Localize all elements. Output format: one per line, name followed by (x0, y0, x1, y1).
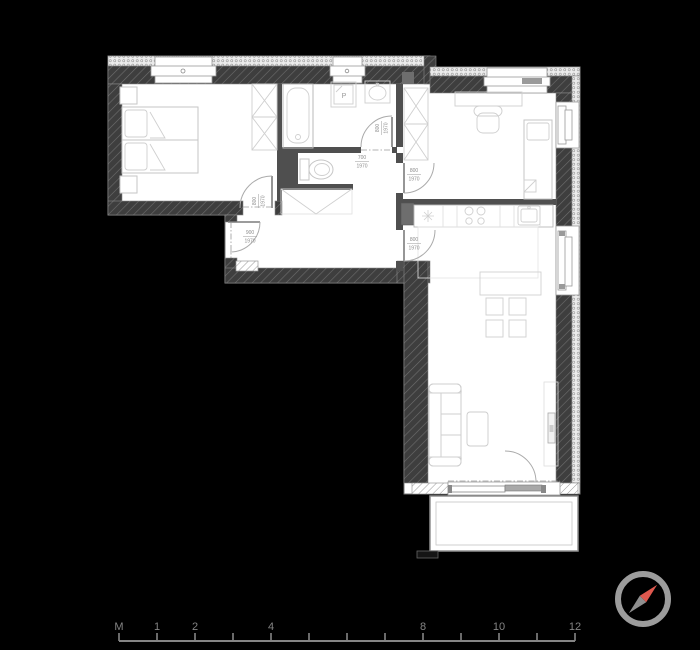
svg-text:1970: 1970 (408, 246, 419, 252)
entrance-doormat (236, 261, 258, 271)
floor-plan-canvas: P (0, 0, 700, 650)
svg-text:800: 800 (375, 124, 381, 133)
svg-text:800: 800 (252, 197, 258, 206)
svg-text:1970: 1970 (384, 122, 390, 133)
svg-text:1970: 1970 (261, 195, 267, 206)
compass-icon (618, 574, 668, 624)
ruler-label-m: M (114, 621, 123, 633)
single-bed (524, 120, 552, 199)
bedroom-1-window (151, 57, 216, 83)
ruler-label-8: 8 (420, 621, 426, 633)
svg-text:700: 700 (358, 155, 367, 161)
ruler-label-2: 2 (192, 621, 198, 633)
ruler-label-4: 4 (268, 621, 274, 633)
svg-text:800: 800 (410, 237, 419, 243)
svg-text:1970: 1970 (408, 177, 419, 183)
nightstand (120, 176, 137, 193)
fridge (401, 203, 414, 225)
svg-text:800: 800 (410, 168, 419, 174)
shaft-column (402, 72, 414, 84)
floor-plan-drawing: P (0, 0, 700, 650)
ruler-label-1: 1 (154, 621, 160, 633)
scale-ruler: M 1 2 4 8 10 12 (114, 621, 581, 641)
ruler-ticks (119, 633, 575, 641)
kitchen-window (556, 226, 579, 295)
double-bed (122, 107, 198, 173)
balcony-step (417, 551, 438, 558)
ruler-label-12: 12 (569, 621, 581, 633)
ruler-label-10: 10 (493, 621, 505, 633)
svg-text:1970: 1970 (244, 239, 255, 245)
sofa (429, 384, 461, 466)
toilet (300, 159, 333, 180)
balcony (417, 496, 578, 558)
nightstand (120, 87, 137, 104)
washer-label: P (342, 93, 347, 100)
svg-text:900: 900 (246, 230, 255, 236)
bathroom-window (330, 57, 365, 83)
svg-text:1970: 1970 (356, 164, 367, 170)
bedroom-2-window (484, 68, 550, 93)
bedroom-2-side-window (556, 102, 579, 148)
kitchen-counter (414, 205, 553, 227)
